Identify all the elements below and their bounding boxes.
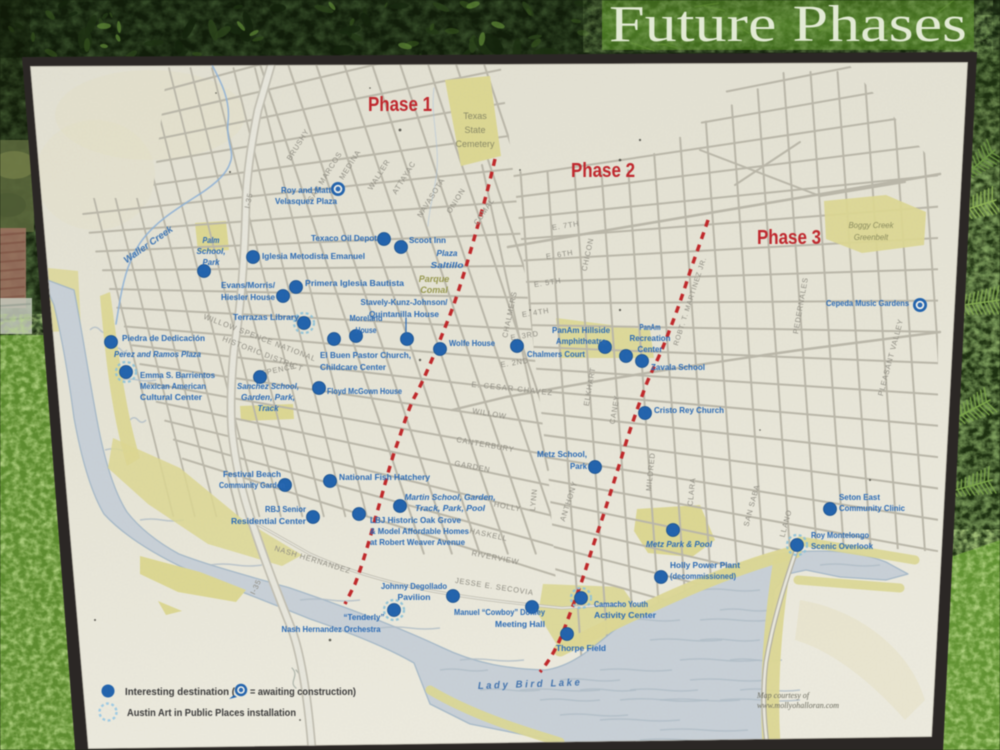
- svg-text:Future Phases: Future Phases: [609, 0, 967, 53]
